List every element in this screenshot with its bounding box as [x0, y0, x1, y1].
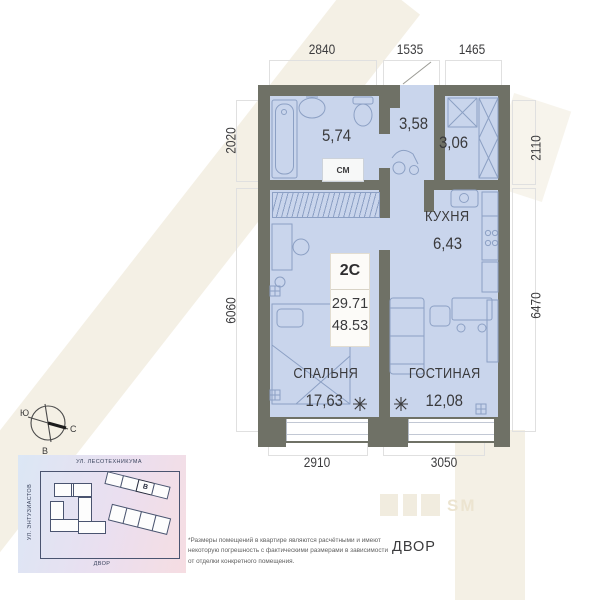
sun-icon: [353, 397, 367, 411]
living-area: 12,08: [414, 391, 474, 411]
floor-plan-page: SM: [0, 0, 600, 600]
dim-top-2: 1535: [375, 42, 445, 57]
compass-needle: [48, 423, 66, 428]
wall-left: [258, 85, 270, 443]
dim-top-1: 2840: [282, 42, 362, 57]
watermark-letter-block: [403, 494, 417, 516]
pier-left: [258, 417, 286, 447]
pier-middle: [368, 417, 408, 447]
street-left-label: УЛ. ЭНТУЗИАСТОВ: [27, 474, 33, 550]
wall-kitchen-top: [424, 180, 510, 190]
dim-left-2: 6060: [224, 291, 239, 331]
bedroom-name: СПАЛЬНЯ: [281, 366, 371, 382]
building: [71, 483, 74, 497]
bedroom-area: 17,63: [294, 391, 354, 411]
entrance-stub: [390, 96, 400, 108]
bathroom-area: 5,74: [307, 126, 367, 146]
street-top-label: УЛ. ЛЕСОТЕХНИКУМА: [40, 459, 178, 465]
watermark-letter-block: [380, 494, 398, 516]
window-living: [408, 419, 496, 441]
unit-living-area: 29.71: [332, 296, 368, 312]
closet-area: 3,06: [424, 133, 484, 153]
wall-top-left: [258, 85, 400, 96]
compass: Ю С В: [16, 396, 82, 458]
living-name: ГОСТИНАЯ: [395, 366, 495, 382]
dim-bottom-2: 3050: [404, 455, 484, 470]
wall-divider-2: [379, 168, 390, 218]
kitchen-area: 6,43: [418, 234, 478, 254]
wall-kitchen-stub: [424, 180, 434, 212]
window-bedroom: [286, 419, 370, 441]
dim-bottom-1: 2910: [277, 455, 357, 470]
sun-icon: [394, 397, 408, 411]
kitchen-name: КУХНЯ: [412, 209, 482, 225]
compass-north: С: [70, 424, 77, 434]
washing-machine-label: СМ: [322, 158, 364, 182]
watermark-text: SM: [447, 496, 477, 516]
pier-right: [494, 417, 510, 447]
watermark-letter-block: [421, 494, 440, 516]
unit-badge: 2С 29.71 48.53: [330, 253, 370, 347]
yard-label: ДВОР: [392, 539, 462, 555]
dim-top-3: 1465: [437, 42, 507, 57]
dim-right-1: 2110: [529, 128, 544, 168]
site-minimap: УЛ. ЛЕСОТЕХНИКУМА УЛ. ЭНТУЗИАСТОВ ДВОР В: [18, 455, 186, 573]
unit-total-area: 48.53: [332, 318, 368, 334]
compass-south: Ю: [20, 408, 29, 418]
wall-divider-3: [379, 250, 390, 443]
wardrobe-hatch: [272, 192, 380, 218]
unit-type: 2С: [340, 262, 360, 280]
wall-right: [498, 85, 510, 443]
footnote: *Размеры помещений в квартире являются р…: [188, 536, 393, 567]
minimap-yard-label: ДВОР: [78, 561, 126, 567]
dim-box-left-1: [236, 100, 260, 182]
hall-area: 3,58: [384, 114, 444, 134]
building: [78, 521, 106, 534]
badge-divider: [331, 289, 369, 290]
dim-right-2: 6470: [529, 286, 544, 326]
dim-left-1: 2020: [224, 121, 239, 161]
dim-box-left-2: [236, 188, 260, 432]
